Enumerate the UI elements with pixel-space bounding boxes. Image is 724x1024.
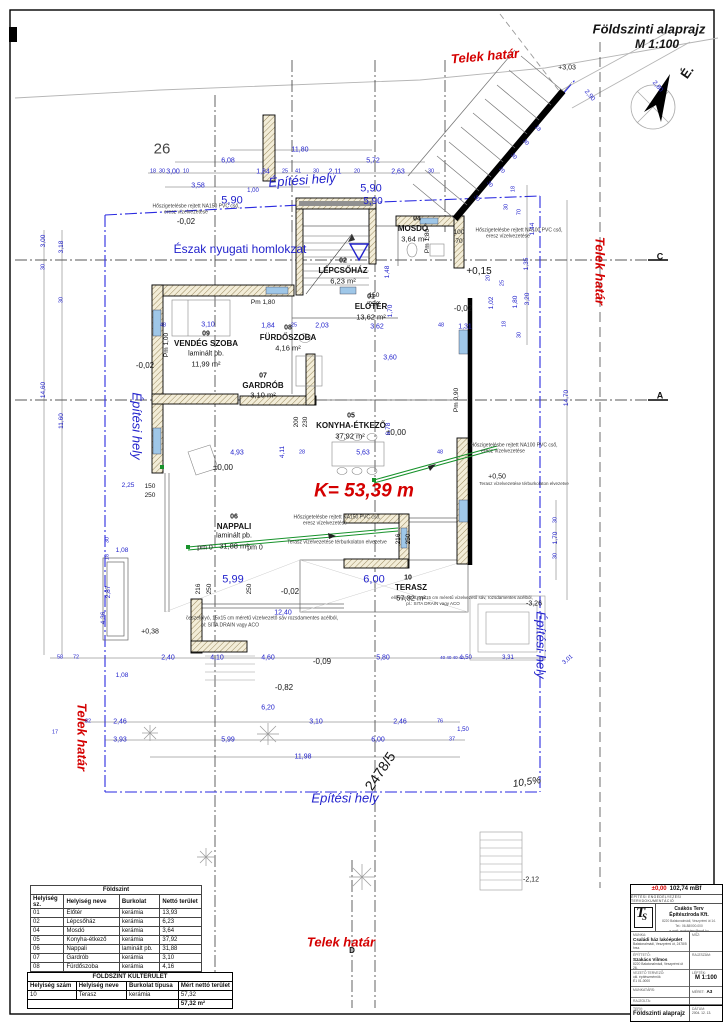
drain-arrows bbox=[160, 446, 497, 550]
field-tervezo: VEZETŐ TERVEZŐ: okl. építészmérnök É1 01… bbox=[631, 970, 689, 987]
axis-lines bbox=[15, 42, 648, 1008]
field-munkatars: MUNKATÁRS: bbox=[631, 987, 689, 998]
field-epitteto: ÉPÍTTETŐ: Szakács Vilmos 8220 Balatonalm… bbox=[631, 952, 689, 970]
field-munka: MUNKA: Családi ház lakóépület Balatonalm… bbox=[631, 932, 689, 952]
level-elevation: 102,74 mBf bbox=[670, 886, 702, 892]
field-rajzszam: RAJZSZÁM: bbox=[690, 952, 722, 970]
terrain-lines bbox=[15, 14, 718, 108]
table-row: 07Gardróbkerámia3,10 bbox=[31, 954, 202, 963]
north-compass-icon bbox=[631, 74, 675, 129]
kulterulet-table: FÖLDSZINT KÜLTERÜLETHelyiség számHelyisé… bbox=[27, 972, 233, 1009]
axis-ticks bbox=[648, 260, 668, 400]
table-row: 08Fürdőszobakerámia4,16 bbox=[31, 963, 202, 972]
table-row: 01Előtérkerámia13,93 bbox=[31, 909, 202, 918]
drawing-sheet: Földszinti alaprajzM 1:100É.262478/510,5… bbox=[0, 0, 724, 1024]
date-field: DÁTUM: 2004. 12. 13. bbox=[689, 1006, 722, 1021]
field-size: MÉRET: A3 bbox=[690, 987, 722, 998]
drawing-title-field: TERV: Földszinti alaprajz bbox=[631, 1006, 689, 1021]
sheet-frame bbox=[9, 10, 714, 1014]
table-row: 06Nappalilaminált pb.31,88 bbox=[31, 945, 202, 954]
field-rajzolta: RAJZOLTA: bbox=[631, 998, 689, 1005]
tree-symbols bbox=[142, 723, 375, 890]
elevation-marker-icon bbox=[350, 244, 368, 260]
table-title-row: FÖLDSZINT KÜLTERÜLET bbox=[28, 973, 233, 982]
company-address: 8220 Balatonalmádi, Veszprémi út 14. bbox=[662, 919, 716, 923]
title-block: ±0,00 102,74 mBf ÉPÍTÉSI ENGEDÉLYEZÉSI T… bbox=[630, 884, 723, 1022]
company-logo: T S bbox=[631, 904, 656, 931]
table-header-row: Helyiség számHelyiség neveBurkolat típus… bbox=[28, 982, 233, 991]
entry-wall-band bbox=[299, 201, 373, 206]
table-title-row: Földszint bbox=[31, 886, 202, 895]
table-header-row: Helyiség sz.Helyiség neveBurkolatNettó t… bbox=[31, 895, 202, 909]
field-scale: LÉPTÉK: M 1:100 bbox=[690, 970, 722, 987]
table-row: 02Lépcsőházkerámia6,23 bbox=[31, 918, 202, 927]
drawing-title: Földszinti alaprajz bbox=[633, 1011, 685, 1017]
table-row: 05Konyha-étkezőkerámia37,92 bbox=[31, 936, 202, 945]
doc-type: ÉPÍTÉSI ENGEDÉLYEZÉSI TERVDOKUMENTÁCIÓ bbox=[631, 895, 722, 904]
floor-plan-drawing bbox=[0, 0, 724, 1024]
walls bbox=[152, 115, 470, 653]
level-zero: ±0,00 bbox=[652, 886, 667, 892]
table-row: 10Teraszkerámia57,32 bbox=[28, 991, 233, 1000]
table-row: 04Mosdókerámia3,64 bbox=[31, 927, 202, 936]
company-row: T S Csákós Terv Építésziroda Kft. 8220 B… bbox=[631, 904, 722, 932]
interior-stair bbox=[303, 234, 369, 294]
field-msz: MSZ: bbox=[690, 932, 722, 952]
datum-level: ±0,00 102,74 mBf bbox=[631, 885, 722, 895]
dimension-lines bbox=[44, 82, 572, 757]
table-total-row: 57,32 m² bbox=[28, 1000, 233, 1009]
